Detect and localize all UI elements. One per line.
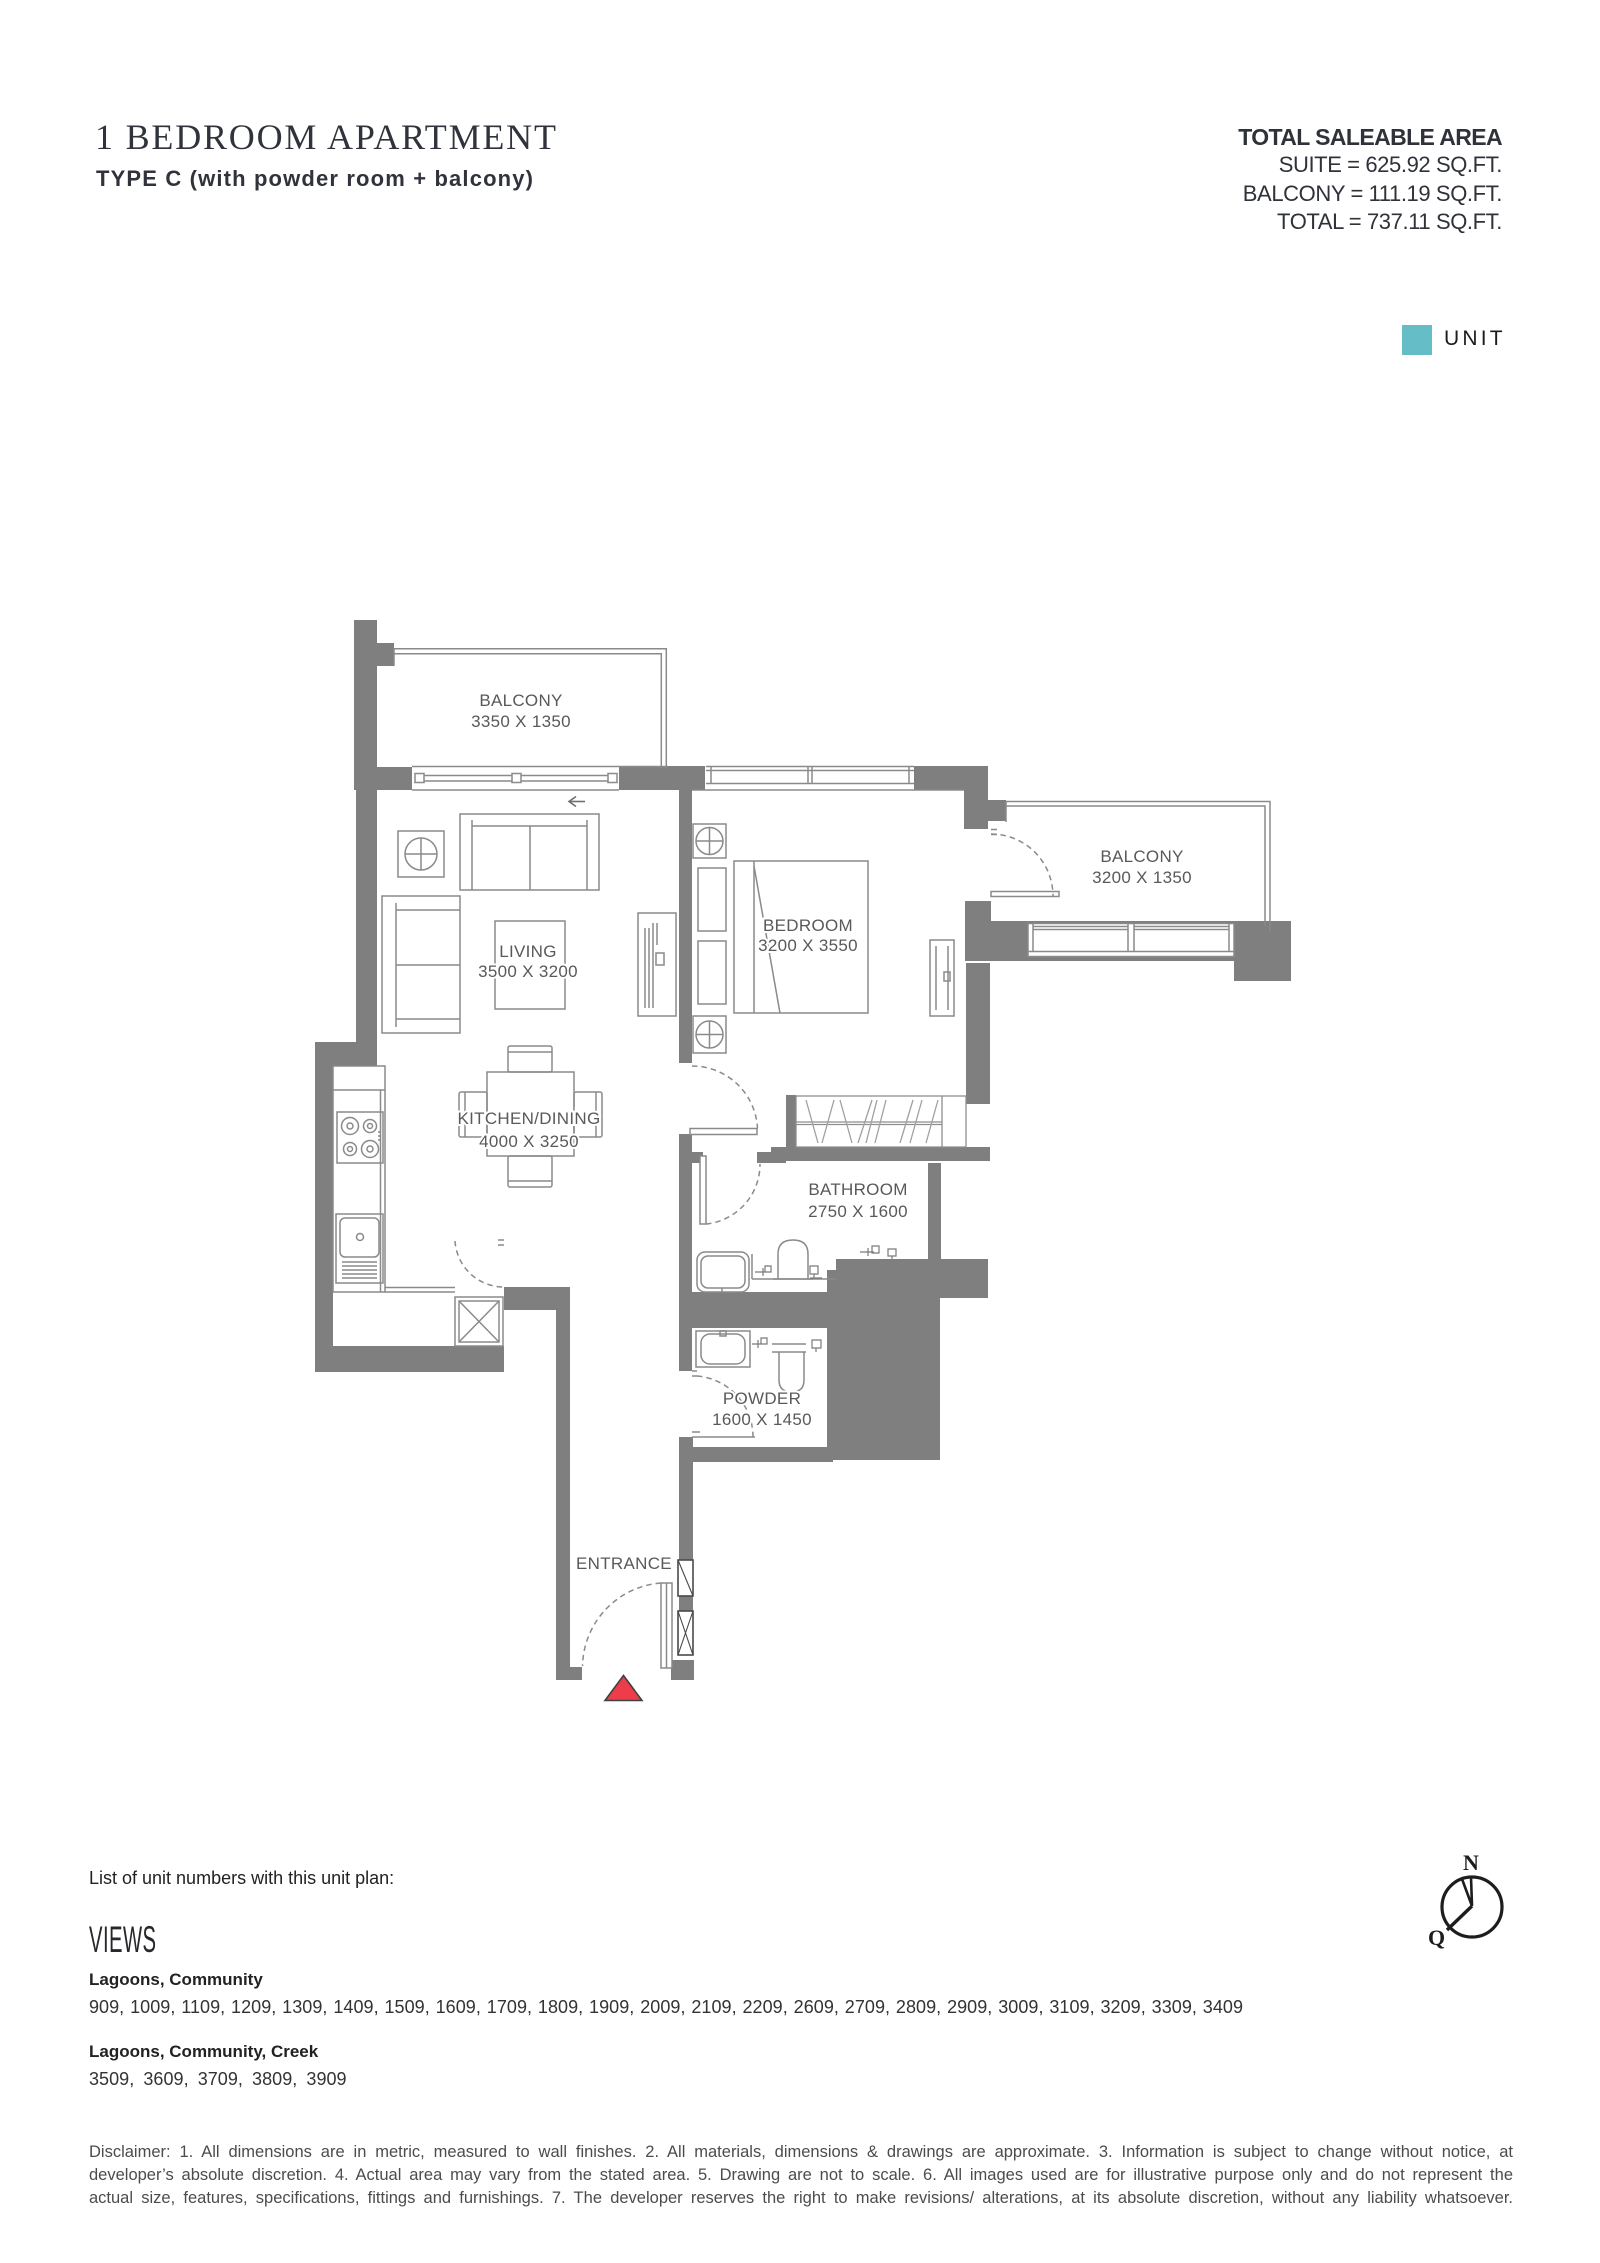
svg-text:BATHROOM: BATHROOM	[808, 1180, 907, 1199]
svg-text:Q: Q	[1428, 1925, 1445, 1950]
svg-text:3200 X 3550: 3200 X 3550	[758, 936, 858, 955]
svg-text:2750 X 1600: 2750 X 1600	[808, 1202, 908, 1221]
svg-text:N: N	[1463, 1850, 1479, 1875]
svg-text:4000 X 3250: 4000 X 3250	[479, 1132, 579, 1151]
svg-text:KITCHEN/DINING: KITCHEN/DINING	[457, 1109, 600, 1128]
svg-text:LIVING: LIVING	[499, 942, 557, 961]
svg-text:POWDER: POWDER	[723, 1389, 801, 1408]
svg-text:3350 X 1350: 3350 X 1350	[471, 712, 571, 731]
svg-text:BALCONY: BALCONY	[1100, 847, 1183, 866]
svg-text:3200 X 1350: 3200 X 1350	[1092, 868, 1192, 887]
svg-text:3500 X 3200: 3500 X 3200	[478, 962, 578, 981]
svg-text:BEDROOM: BEDROOM	[763, 916, 853, 935]
svg-text:ENTRANCE: ENTRANCE	[576, 1554, 672, 1573]
svg-text:BALCONY: BALCONY	[479, 691, 562, 710]
svg-text:1600 X 1450: 1600 X 1450	[712, 1410, 812, 1429]
